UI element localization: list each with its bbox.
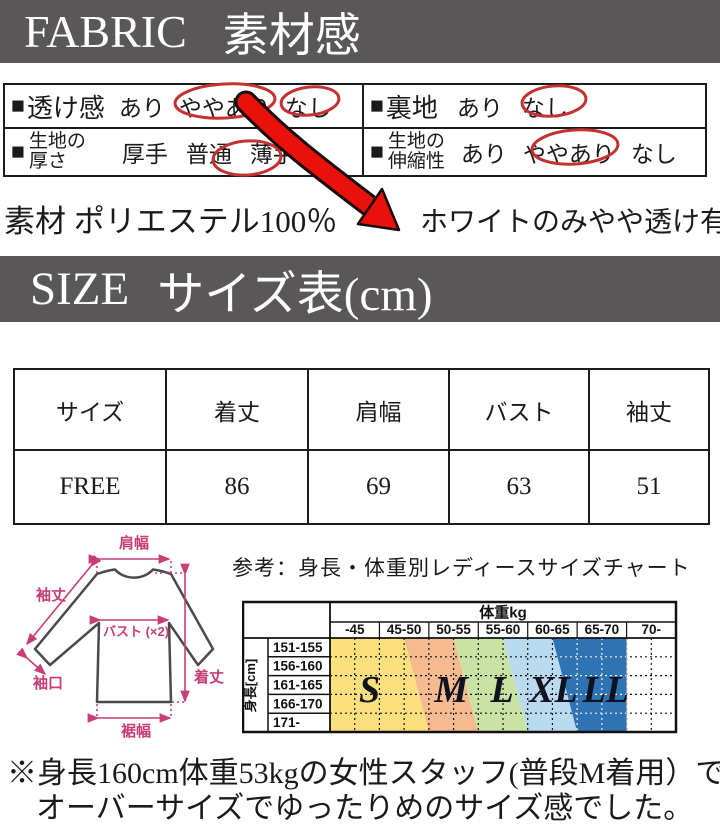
fabric-section-banner: FABRIC 素材感 (0, 0, 720, 63)
fabric-row-lining: ■裏地ありなし (364, 85, 705, 127)
chart-size-letter-M: M (433, 669, 469, 711)
chart-size-letter-S: S (359, 669, 380, 711)
label-shoulder-width: 肩幅 (119, 534, 149, 552)
chart-row-axis-label: 身長[cm] (243, 659, 258, 712)
size-table-cell-0-3: 63 (449, 450, 589, 524)
fabric-option-sheerness-2: なし (285, 89, 331, 123)
fabric-label-lining: 裏地 (386, 88, 438, 125)
material-composition-text: 素材 ポリエステル100％ (4, 196, 337, 241)
size-table-cell-0-4: 51 (589, 450, 709, 524)
fabric-option-thickness-1: 普通 (186, 135, 232, 169)
height-weight-size-chart: 体重kg-4545-5050-5555-6060-6565-7070-151-1… (242, 600, 678, 734)
chart-size-letter-XL: XL (528, 669, 578, 711)
fabric-option-stretch-2: なし (631, 135, 677, 169)
chart-row-label-2: 161-165 (273, 678, 323, 693)
chart-row-label-1: 156-160 (273, 659, 323, 674)
size-table-cell-0-0: FREE (14, 450, 166, 524)
fabric-label-stretch: 生地の伸縮性 (388, 132, 445, 172)
size-table-header-3: バスト (449, 369, 589, 450)
cuff-arrow (27, 658, 45, 674)
label-sleeve-length: 袖丈 (36, 586, 66, 604)
label-bust: バスト (×2) (103, 624, 169, 639)
size-table-header-2: 肩幅 (308, 369, 449, 450)
fabric-option-stretch-0: あり (461, 135, 507, 169)
garment-measurement-diagram: 肩幅 袖丈 バスト (×2) 袖口 着丈 裾幅 (15, 532, 230, 767)
chart-row-label-4: 171- (273, 715, 300, 730)
note-line-1: ※身長160cm体重53kgの女性スタッフ(普段M着用）で (7, 756, 720, 791)
size-table-header-1: 着丈 (166, 369, 308, 450)
chart-row-label-0: 151-155 (273, 640, 323, 655)
chart-col-label-6: 70- (642, 622, 662, 637)
bullet-square-icon: ■ (11, 139, 25, 165)
bullet-square-icon: ■ (11, 93, 25, 119)
size-table-header-0: サイズ (14, 369, 166, 450)
fabric-label-sheerness: 透け感 (27, 88, 105, 125)
chart-col-label-1: 45-50 (387, 622, 422, 637)
chart-col-label-3: 55-60 (486, 622, 521, 637)
staff-fitting-note: ※身長160cm体重53kgの女性スタッフ(普段M着用）で オーバーサイズでゆっ… (7, 756, 720, 826)
size-table-cell-0-1: 86 (166, 450, 308, 524)
chart-title: 体重kg (479, 604, 527, 622)
bullet-square-icon: ■ (370, 93, 384, 119)
size-table-row-0: FREE86696351 (14, 450, 709, 524)
label-hem-width: 裾幅 (121, 722, 151, 740)
chart-row-label-3: 166-170 (273, 696, 323, 711)
fabric-option-lining-0: あり (457, 89, 503, 123)
label-length: 着丈 (193, 668, 224, 686)
note-line-2: オーバーサイズでゆったりめのサイズ感でした。 (36, 791, 720, 826)
chart-col-label-5: 65-70 (585, 622, 620, 637)
chart-size-letter-L: L (489, 669, 513, 711)
chart-col-label-2: 50-55 (436, 622, 471, 637)
fabric-option-thickness-0: 厚手 (122, 135, 168, 169)
fabric-spec-table: ■透け感ありややありなし■裏地ありなし■生地の厚さ厚手普通薄手■生地の伸縮性あり… (3, 83, 707, 177)
size-measurement-table: サイズ着丈肩幅バスト袖丈FREE86696351 (13, 368, 710, 525)
reference-chart-caption: 参考：身長・体重別レディースサイズチャート (232, 552, 691, 582)
fabric-banner-ja: 素材感 (223, 0, 361, 65)
size-table-cell-0-2: 69 (308, 450, 449, 524)
fabric-option-lining-1: なし (522, 89, 568, 123)
size-table-header-4: 袖丈 (589, 369, 709, 450)
chart-col-label-4: 60-65 (535, 622, 570, 637)
fabric-row-thickness: ■生地の厚さ厚手普通薄手 (5, 129, 362, 175)
size-banner-en: SIZE (30, 262, 129, 316)
chart-col-label-0: -45 (345, 622, 365, 637)
size-section-banner: SIZE サイズ表(cm) (0, 256, 720, 322)
fabric-option-thickness-2: 薄手 (250, 135, 296, 169)
fabric-option-stretch-1: ややあり (523, 135, 615, 169)
bullet-square-icon: ■ (370, 139, 384, 165)
fabric-banner-en: FABRIC (24, 5, 187, 58)
fabric-label-thickness: 生地の厚さ (29, 132, 86, 172)
label-cuff: 袖口 (33, 674, 63, 692)
size-banner-ja: サイズ表(cm) (157, 255, 432, 324)
fabric-option-sheerness-0: あり (119, 89, 165, 123)
chart-size-letter-LL: LL (582, 669, 629, 711)
fabric-option-sheerness-1: ややあり (179, 89, 271, 123)
fabric-row-stretch: ■生地の伸縮性ありややありなし (364, 129, 705, 175)
material-sheerness-note: ホワイトのみやや透け有 (420, 200, 720, 240)
fabric-row-sheerness: ■透け感ありややありなし (5, 85, 362, 127)
